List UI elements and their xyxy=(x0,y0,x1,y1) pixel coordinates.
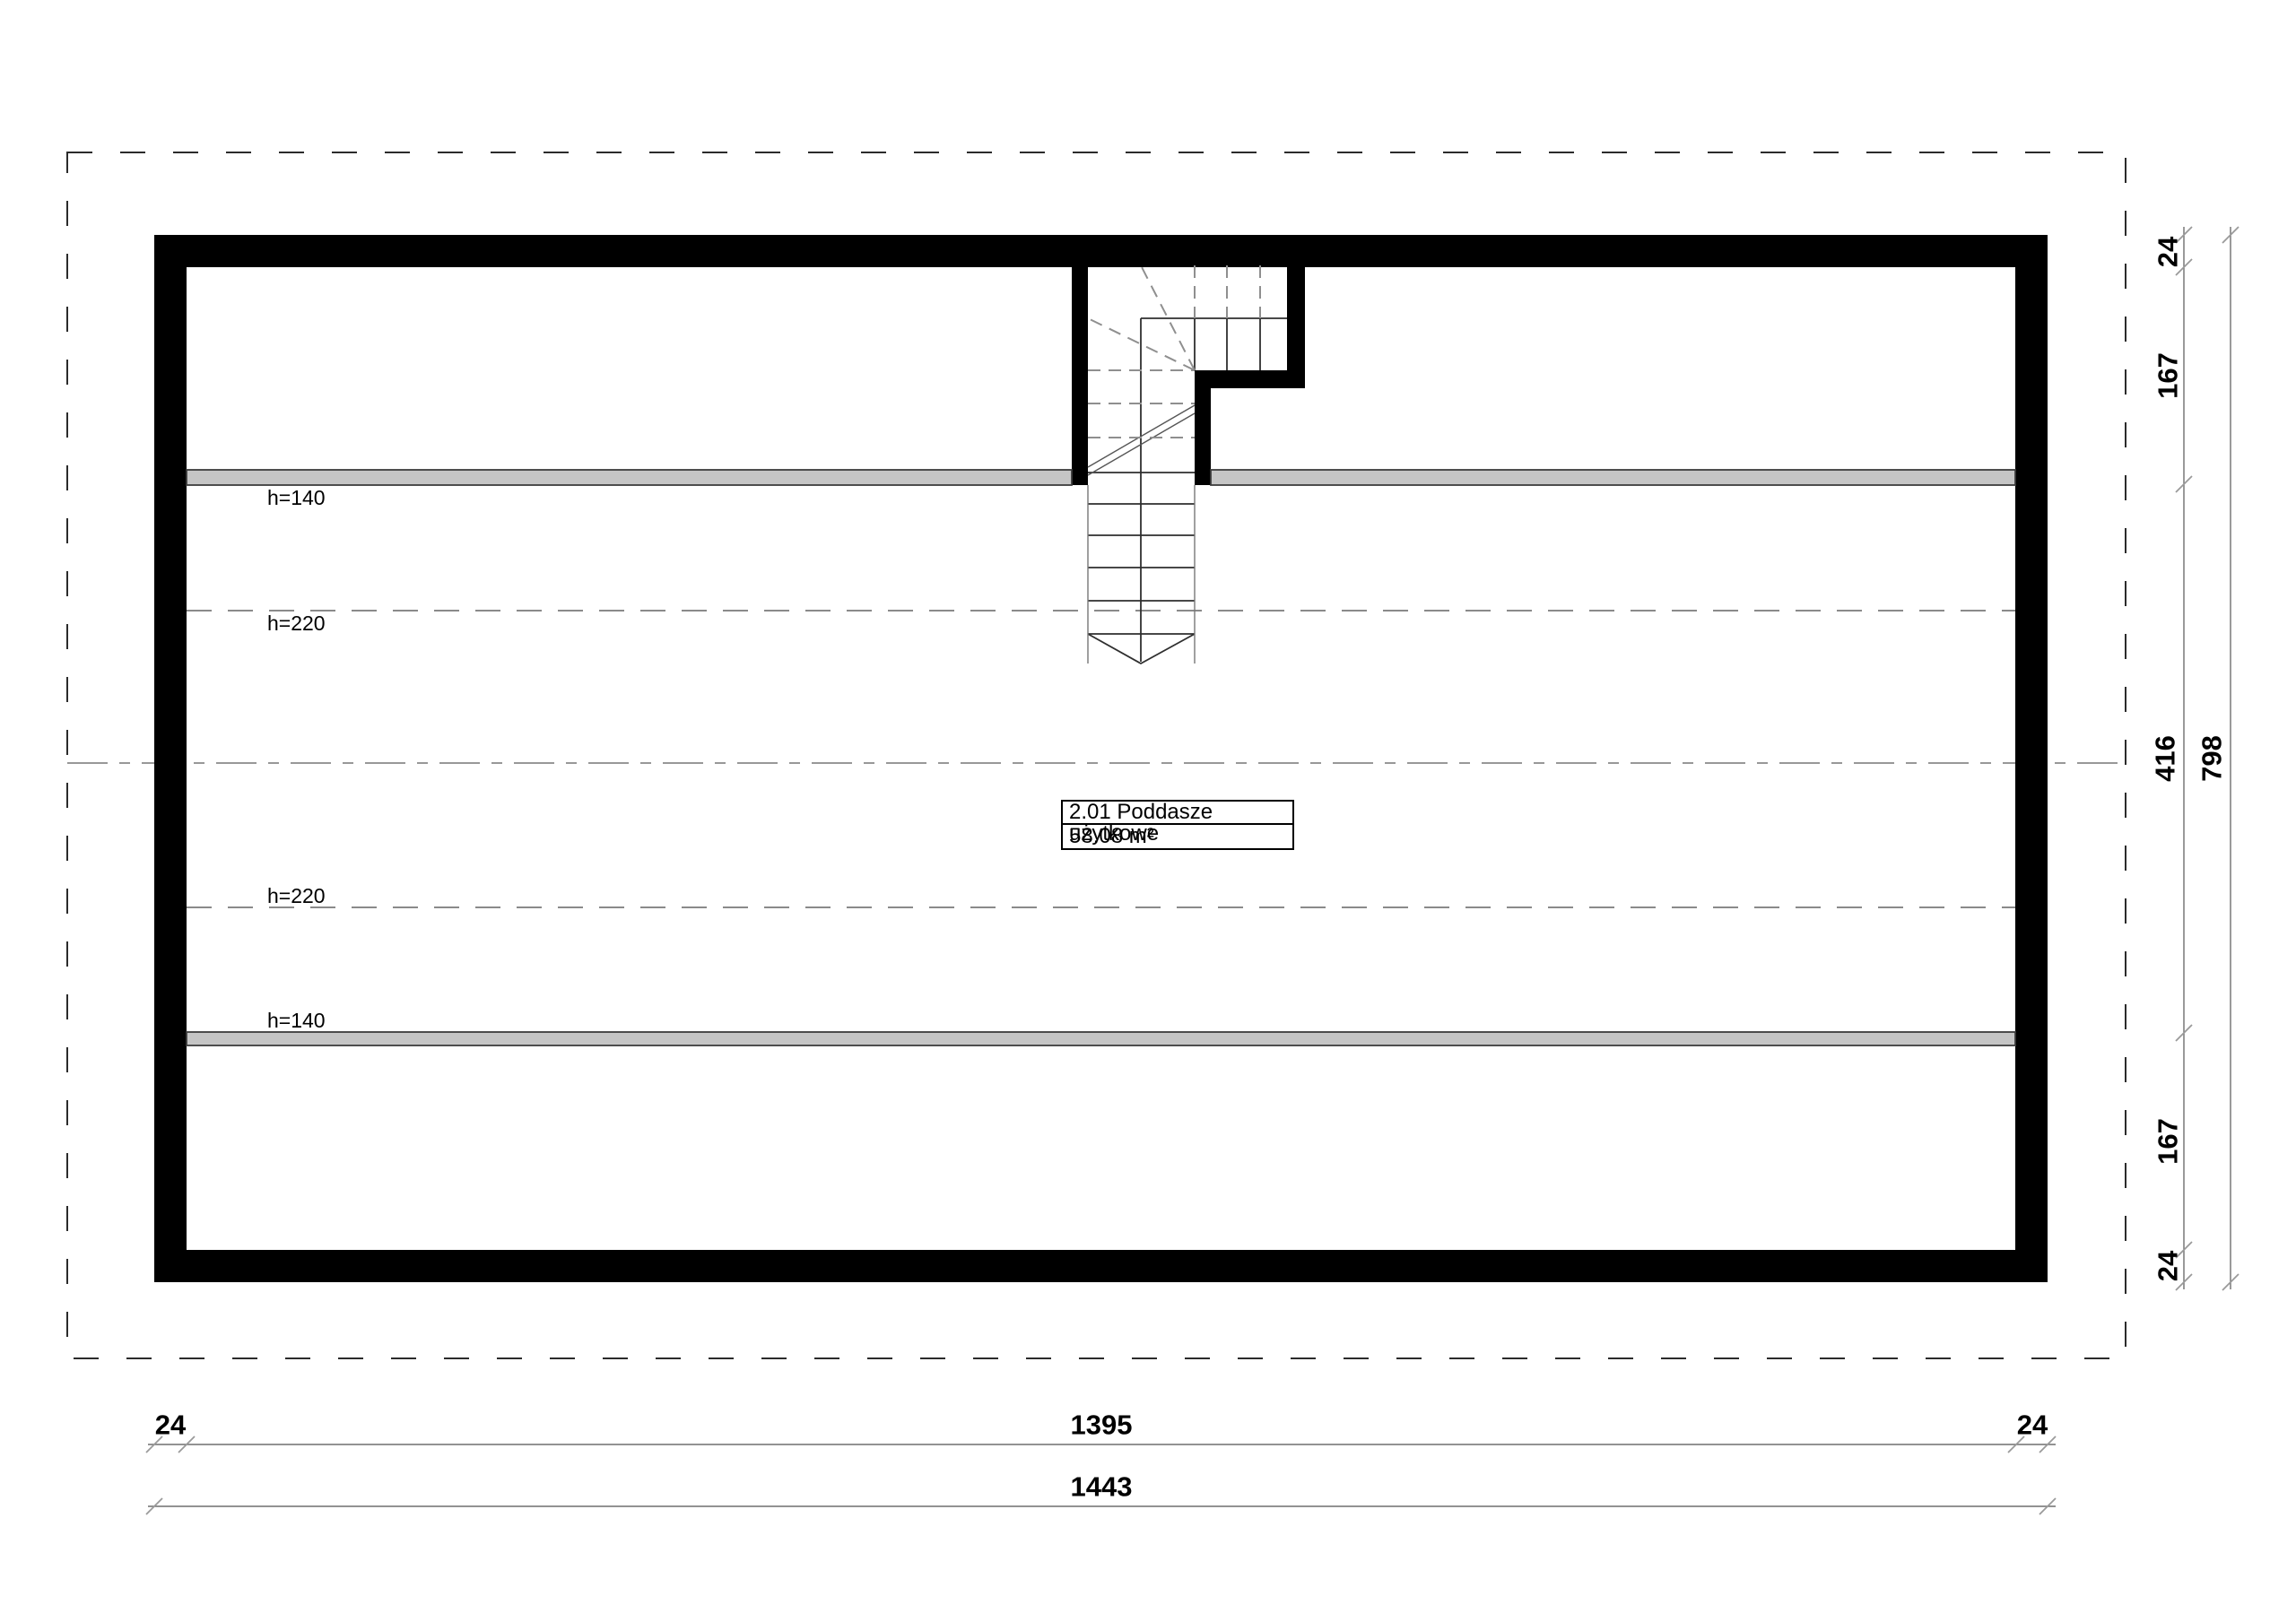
knee-wall-band-bottom xyxy=(187,1032,2015,1045)
room-label-box: 2.01 Poddasze użytkowe 58.08 m² xyxy=(1061,800,1294,850)
stair-treads-dashed xyxy=(1088,265,1260,438)
staircase xyxy=(1088,265,1287,664)
dim-right-24-bottom: 24 xyxy=(2154,1251,2182,1281)
h220-label-bottom: h=220 xyxy=(267,886,326,906)
dimension-lines xyxy=(148,227,2231,1506)
stair-wall-right-upper xyxy=(1287,265,1305,370)
knee-wall-band-top-left xyxy=(187,470,1072,485)
dim-bottom-1443-total: 1443 xyxy=(1071,1473,1133,1501)
room-area: 58.08 m² xyxy=(1063,825,1292,848)
exterior-walls xyxy=(154,235,2048,1282)
dim-bottom-24-right: 24 xyxy=(2017,1411,2048,1439)
dim-bottom-1395: 1395 xyxy=(1071,1411,1133,1439)
h220-label-top: h=220 xyxy=(267,613,326,634)
knee-wall-bands xyxy=(187,470,2015,1045)
dimension-ticks xyxy=(146,227,2239,1514)
stair-wall-horizontal xyxy=(1195,370,1305,388)
h220-lines xyxy=(187,611,2015,907)
stair-wall-left xyxy=(1072,265,1088,485)
dim-right-167-top: 167 xyxy=(2154,352,2182,399)
dim-right-416: 416 xyxy=(2152,735,2179,782)
knee-wall-band-top-right xyxy=(1211,470,2015,485)
roof-outline xyxy=(67,152,2126,1358)
stair-walls xyxy=(1072,265,1305,485)
stair-wall-right-lower xyxy=(1195,388,1211,485)
dim-right-24-top: 24 xyxy=(2154,237,2182,267)
dim-right-167-bottom: 167 xyxy=(2154,1118,2182,1165)
dim-bottom-24-left: 24 xyxy=(155,1411,186,1439)
dim-right-798-total: 798 xyxy=(2198,735,2226,782)
h140-label-bottom: h=140 xyxy=(267,1010,326,1031)
room-name: 2.01 Poddasze użytkowe xyxy=(1063,802,1292,825)
attic-floor-plan-page: { "title": "Attic floor plan", "room_lab… xyxy=(0,0,2296,1622)
h140-label-top: h=140 xyxy=(267,488,326,508)
